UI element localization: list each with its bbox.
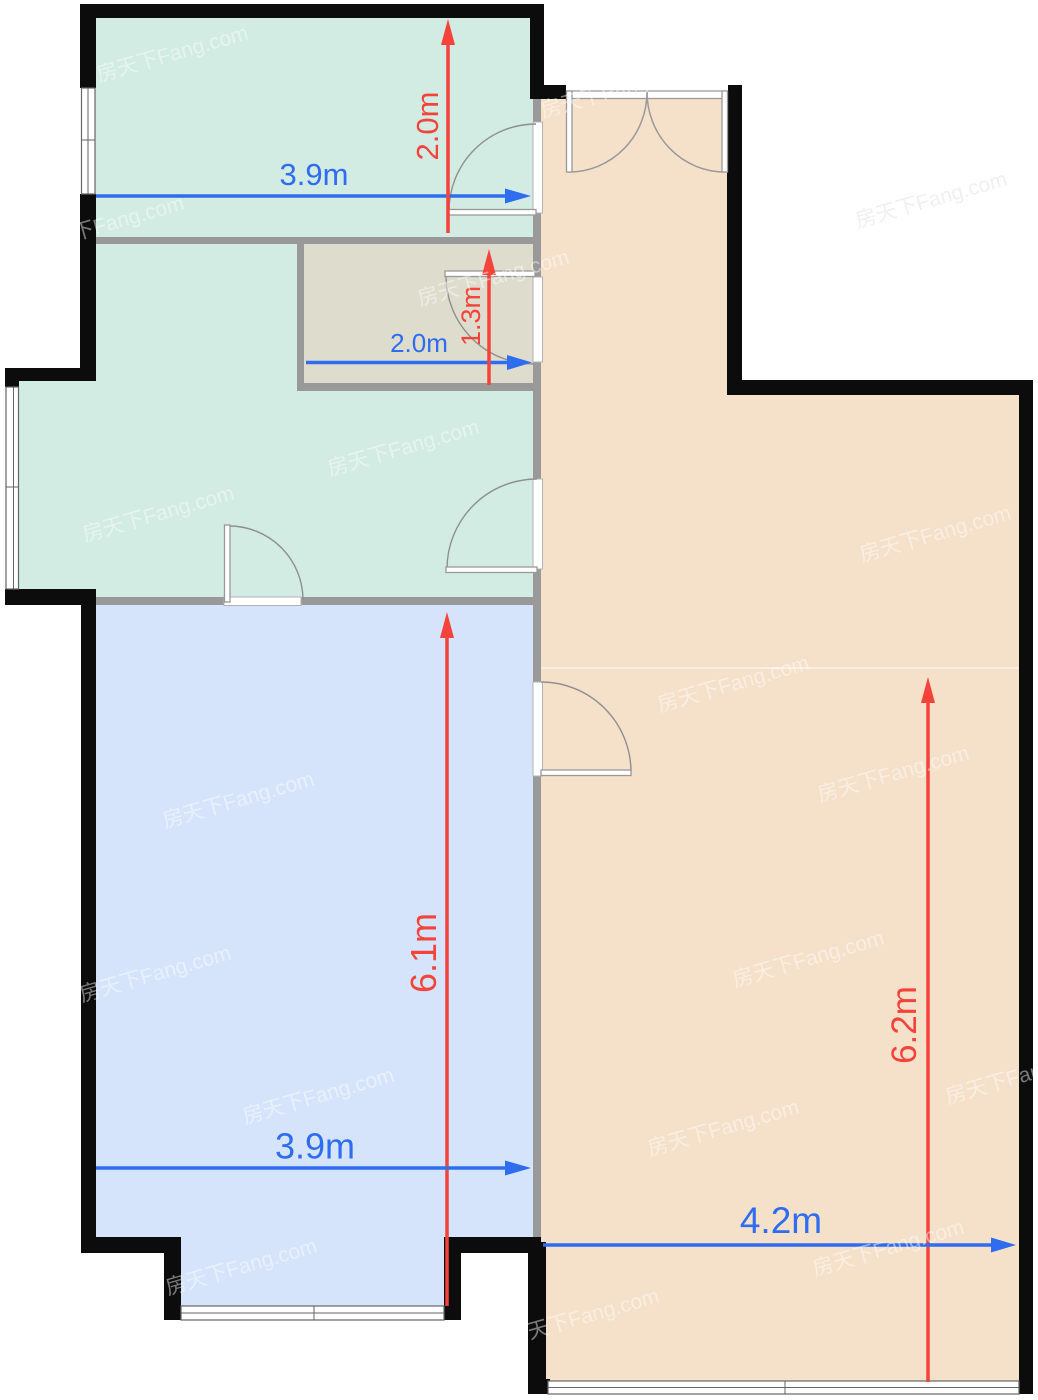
svg-text:2.0m: 2.0m — [390, 328, 448, 358]
svg-text:3.9m: 3.9m — [280, 157, 349, 192]
svg-text:3.9m: 3.9m — [275, 1126, 355, 1167]
svg-text:6.1m: 6.1m — [403, 913, 444, 993]
svg-text:2.0m: 2.0m — [410, 92, 445, 161]
svg-text:4.2m: 4.2m — [740, 1200, 822, 1241]
svg-text:6.2m: 6.2m — [885, 986, 924, 1064]
